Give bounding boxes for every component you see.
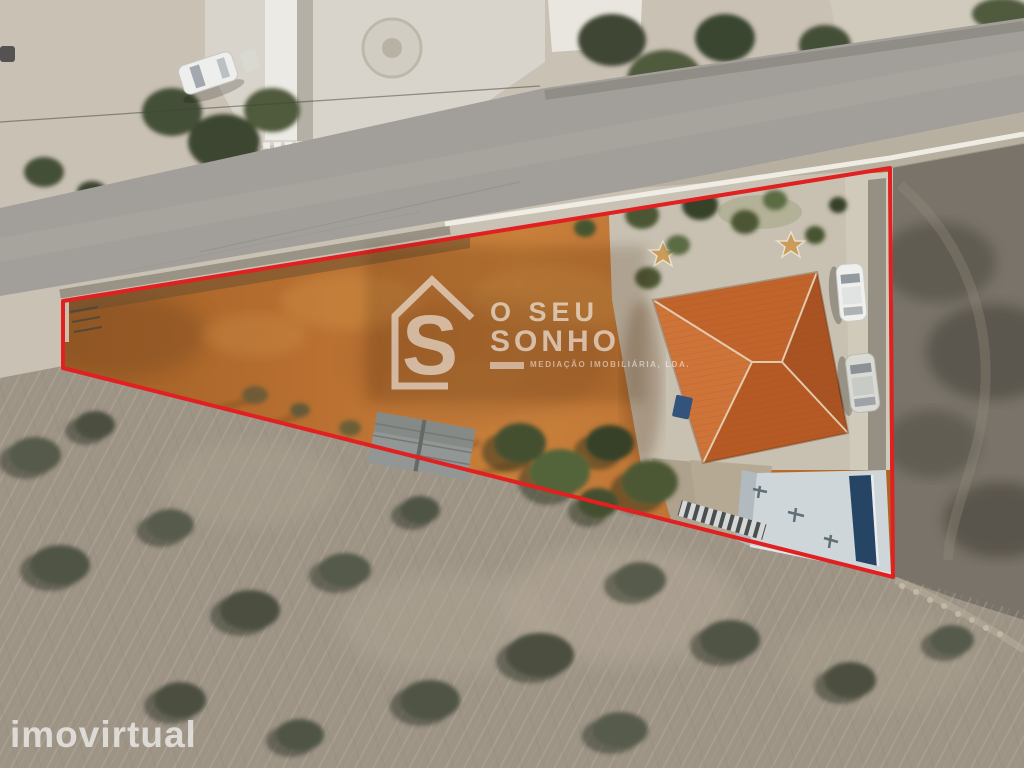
aerial-photo: S O SEU SONHO MEDIAÇÃO IMOBILIÁRIA, LDA.… [0, 0, 1024, 768]
aerial-scene [0, 0, 1024, 768]
